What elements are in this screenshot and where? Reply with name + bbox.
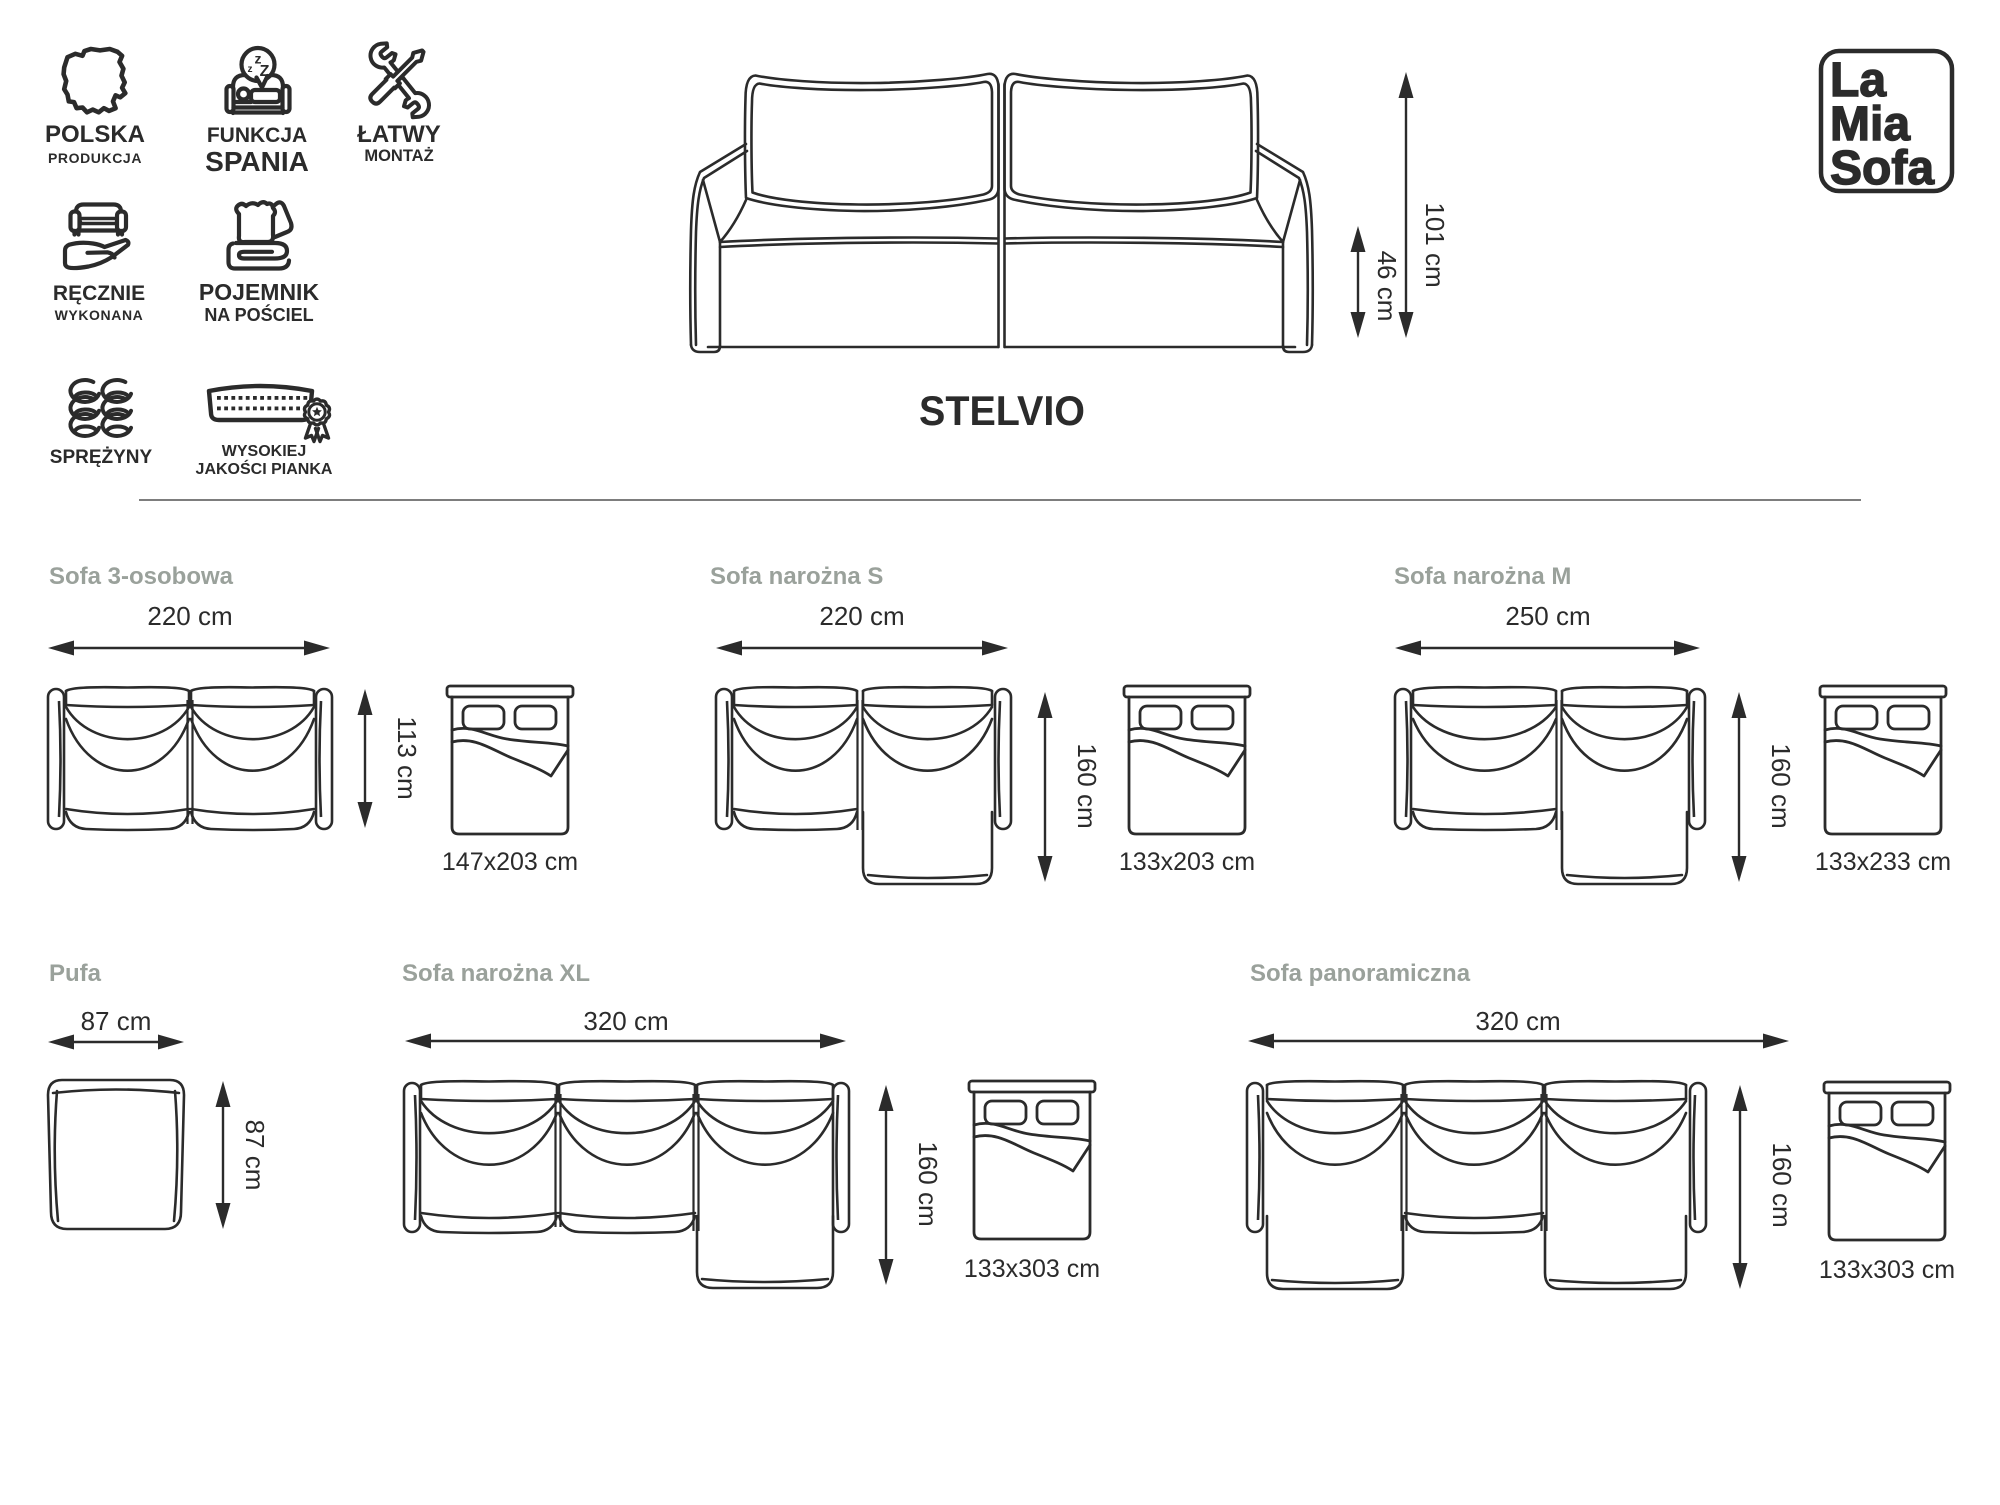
svg-text:ŁATWY: ŁATWY — [357, 121, 441, 148]
svg-text:Sofa narożna XL: Sofa narożna XL — [402, 960, 590, 987]
svg-text:z: z — [248, 64, 253, 75]
svg-text:133x233 cm: 133x233 cm — [1815, 848, 1951, 876]
svg-text:STELVIO: STELVIO — [919, 387, 1085, 434]
svg-text:87 cm: 87 cm — [240, 1120, 270, 1191]
svg-text:320 cm: 320 cm — [583, 1006, 668, 1036]
svg-text:320 cm: 320 cm — [1475, 1006, 1560, 1036]
svg-text:133x303 cm: 133x303 cm — [1819, 1256, 1955, 1284]
svg-text:220 cm: 220 cm — [819, 601, 904, 631]
svg-text:160 cm: 160 cm — [1767, 1142, 1797, 1227]
svg-text:Sofa narożna M: Sofa narożna M — [1394, 563, 1571, 590]
svg-text:46 cm: 46 cm — [1372, 251, 1402, 322]
svg-text:WYSOKIEJ: WYSOKIEJ — [222, 443, 306, 460]
svg-text:160 cm: 160 cm — [1766, 743, 1796, 828]
svg-text:250 cm: 250 cm — [1505, 601, 1590, 631]
svg-text:JAKOŚCI PIANKA: JAKOŚCI PIANKA — [196, 459, 333, 478]
svg-text:SPRĘŻYNY: SPRĘŻYNY — [50, 447, 153, 468]
svg-text:220 cm: 220 cm — [147, 601, 232, 631]
svg-text:160 cm: 160 cm — [913, 1141, 943, 1226]
svg-text:Sofa narożna S: Sofa narożna S — [710, 563, 883, 590]
svg-text:87 cm: 87 cm — [81, 1006, 152, 1036]
svg-text:FUNKCJA: FUNKCJA — [207, 124, 307, 147]
svg-text:MONTAŻ: MONTAŻ — [364, 147, 433, 165]
svg-text:Sofa 3-osobowa: Sofa 3-osobowa — [49, 563, 234, 590]
svg-text:Sofa panoramiczna: Sofa panoramiczna — [1250, 960, 1471, 987]
svg-text:POLSKA: POLSKA — [45, 121, 145, 148]
svg-text:147x203 cm: 147x203 cm — [442, 848, 578, 876]
svg-text:RĘCZNIE: RĘCZNIE — [53, 282, 145, 305]
svg-text:SPANIA: SPANIA — [205, 146, 309, 177]
svg-text:Z: Z — [260, 63, 270, 80]
svg-text:WYKONANA: WYKONANA — [55, 307, 144, 323]
svg-text:113 cm: 113 cm — [392, 716, 422, 799]
svg-text:133x203 cm: 133x203 cm — [1119, 848, 1255, 876]
svg-text:101 cm: 101 cm — [1420, 202, 1450, 287]
svg-text:PRODUKCJA: PRODUKCJA — [48, 150, 142, 166]
svg-text:133x303 cm: 133x303 cm — [964, 1255, 1100, 1283]
svg-text:Sofa: Sofa — [1830, 142, 1934, 195]
svg-text:Pufa: Pufa — [49, 960, 102, 987]
svg-text:160 cm: 160 cm — [1072, 743, 1102, 828]
svg-text:POJEMNIK: POJEMNIK — [199, 279, 320, 305]
svg-text:NA POŚCIEL: NA POŚCIEL — [204, 304, 313, 325]
